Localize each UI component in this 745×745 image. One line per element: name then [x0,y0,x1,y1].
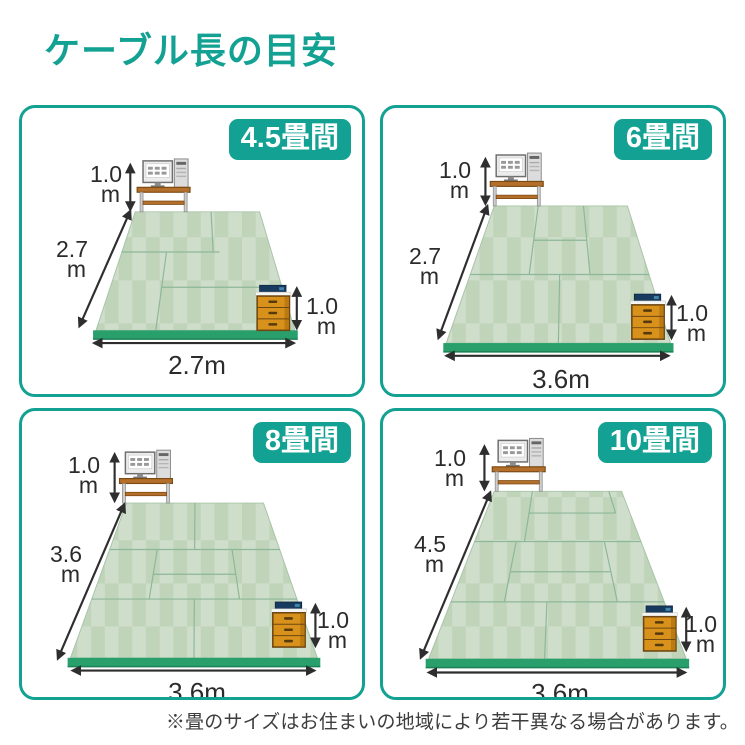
room-width-label: 2.7m [127,352,267,378]
room-size-badge: 10畳間 [598,422,712,463]
room-depth-unit: m [380,554,444,574]
desk-computer-icon [490,153,543,206]
chest-height-unit: m [279,630,347,650]
panel-10-tatami: 10畳間 1.0 m 4.5 m 1.0 m 3.6m [380,408,726,700]
pc-tower-icon [528,153,542,181]
panel-4-5-tatami: 4.5畳間 1.0 m 2.7 m 1.0 m 2.7m [19,105,365,397]
room-width-label: 3.6m [490,680,630,700]
panel-8-tatami: 8畳間 1.0 m 3.6 m 1.0 m 3.6m [19,408,365,700]
desk-computer-icon [137,159,190,212]
room-panels-grid: 4.5畳間 1.0 m 2.7 m 1.0 m 2.7m [19,105,726,703]
chest-height-unit: m [647,634,715,654]
page-title: ケーブル長の目安 [44,31,338,71]
desk-height-label: 1.0 m [30,455,100,495]
desk-top [492,467,545,472]
desk-top [490,181,543,186]
tatami-size-footnote: ※畳のサイズはお住まいの地域により若干異なる場合があります。 [166,707,739,734]
desk-height-label: 1.0 m [401,160,471,200]
room-depth-unit: m [19,564,80,584]
panel-6-tatami: 6畳間 1.0 m 2.7 m 1.0 m 3.6m [380,105,726,397]
room-depth-label: 3.6 m [19,544,82,584]
desk-top [120,479,173,484]
floor-base [426,659,689,668]
room-size-badge: 4.5畳間 [229,119,351,160]
cable-length-guide-page: ケーブル長の目安 [0,0,745,745]
chest-height-label: 1.0 m [647,614,717,654]
room-depth-unit: m [380,266,439,286]
room-depth-label: 4.5 m [380,534,446,574]
room-depth-label: 2.7 m [19,239,88,279]
pc-tower-icon [157,450,171,478]
room-width-label: 3.6m [127,679,267,700]
chest-height-label: 1.0 m [638,303,708,343]
desk-height-unit: m [396,468,464,488]
pc-tower-icon [529,438,543,466]
room-depth-label: 2.7 m [380,246,441,286]
desk-top [137,187,190,192]
room-width-label: 3.6m [491,366,631,392]
floor-base [443,343,673,352]
chest-height-unit: m [268,316,336,336]
desk-height-unit: m [401,180,469,200]
desk-height-unit: m [30,475,98,495]
chest-height-label: 1.0 m [279,610,349,650]
desk-height-label: 1.0 m [52,164,122,204]
desk-computer-icon [120,450,173,503]
room-size-badge: 8畳間 [253,422,351,463]
chest-height-label: 1.0 m [268,296,338,336]
floor-base [68,658,321,667]
desk-computer-icon [492,438,545,491]
desk-height-label: 1.0 m [396,448,466,488]
pc-tower-icon [174,159,188,187]
room-size-badge: 6畳間 [614,119,712,160]
chest-height-unit: m [638,323,706,343]
desk-height-unit: m [52,184,120,204]
room-depth-unit: m [19,259,86,279]
